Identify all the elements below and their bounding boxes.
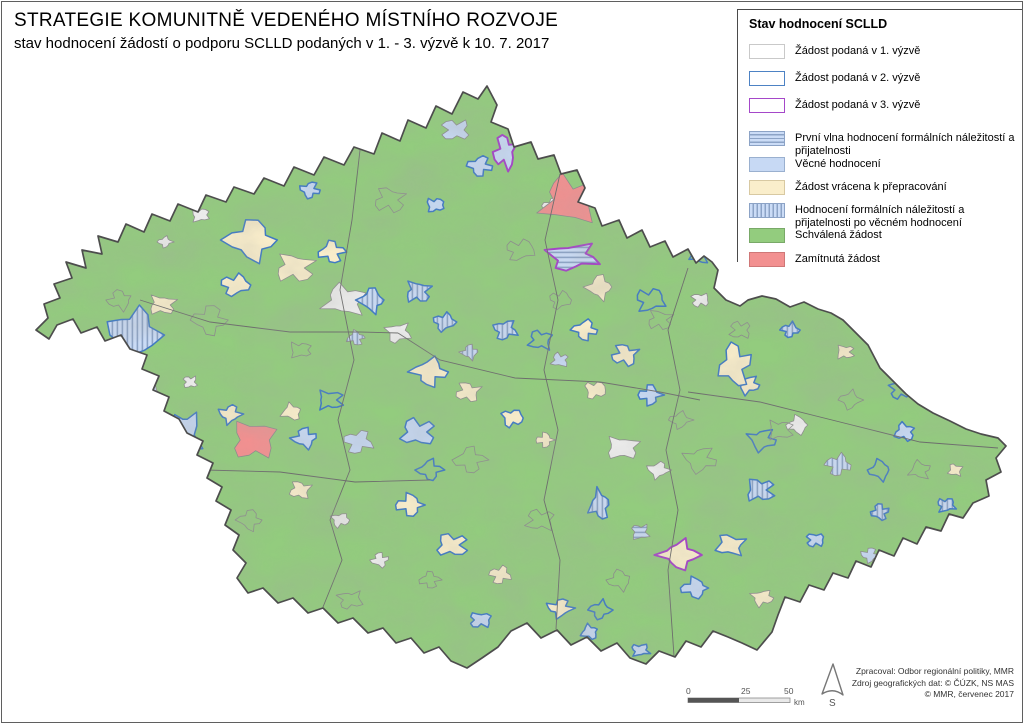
title-block: STRATEGIE KOMUNITNĚ VEDENÉHO MÍSTNÍHO RO… bbox=[14, 10, 558, 53]
legend-item-label: Žádost podaná v 1. výzvě bbox=[795, 44, 920, 58]
scale-bar-filled-segment bbox=[688, 698, 739, 703]
legend-item: Žádost podaná v 1. výzvě bbox=[749, 44, 920, 59]
scale-tick-25: 25 bbox=[741, 686, 751, 696]
legend-swatch-cream bbox=[749, 180, 785, 195]
legend-swatch-outline-blue bbox=[749, 71, 785, 86]
legend-swatch-hstripe bbox=[749, 131, 785, 146]
legend-item-label: Žádost podaná v 2. výzvě bbox=[795, 71, 920, 85]
legend-item: Věcné hodnocení bbox=[749, 157, 881, 172]
credit-line-source: Zdroj geografických dat: © ČÚZK, NS MAS bbox=[852, 678, 1014, 690]
mas-region bbox=[856, 618, 875, 633]
legend-swatch-vstripe bbox=[749, 203, 785, 218]
scale-bar-graphic: 0 25 50 km bbox=[680, 684, 815, 710]
mas-region bbox=[259, 141, 284, 159]
scale-tick-0: 0 bbox=[686, 686, 691, 696]
legend-swatch-green bbox=[749, 228, 785, 243]
credit-line-author: Zpracoval: Odbor regionální politiky, MM… bbox=[852, 666, 1014, 678]
page-title: STRATEGIE KOMUNITNĚ VEDENÉHO MÍSTNÍHO RO… bbox=[14, 10, 558, 32]
scale-bar: 0 25 50 km bbox=[680, 684, 815, 715]
north-arrow-graphic: S bbox=[812, 660, 852, 708]
legend-swatch-red bbox=[749, 252, 785, 267]
mas-region bbox=[903, 574, 920, 589]
legend-item: Zamítnutá žádost bbox=[749, 252, 880, 267]
legend-item-label: Zamítnutá žádost bbox=[795, 252, 880, 266]
mas-region bbox=[251, 157, 278, 179]
scale-tick-50: 50 bbox=[784, 686, 794, 696]
legend-swatch-outline-purple bbox=[749, 98, 785, 113]
legend-title: Stav hodnocení SCLLD bbox=[749, 17, 1022, 31]
map-credits: Zpracoval: Odbor regionální politiky, MM… bbox=[852, 666, 1014, 701]
legend-item-label: Schválená žádost bbox=[795, 228, 882, 242]
credit-line-copyright: © MMR, červenec 2017 bbox=[852, 689, 1014, 701]
legend-item: První vlna hodnocení formálních náležito… bbox=[749, 131, 1020, 157]
legend-item: Žádost vrácena k přepracování bbox=[749, 180, 947, 195]
legend-item-label: Hodnocení formálních náležitostí a přija… bbox=[795, 203, 1020, 229]
legend-item: Žádost podaná v 2. výzvě bbox=[749, 71, 920, 86]
legend-item-label: Žádost podaná v 3. výzvě bbox=[795, 98, 920, 112]
mas-region bbox=[879, 572, 901, 589]
legend-item: Schválená žádost bbox=[749, 228, 882, 243]
legend-swatch-lightblue bbox=[749, 157, 785, 172]
north-arrow-label: S bbox=[829, 698, 836, 708]
legend-item-label: První vlna hodnocení formálních náležito… bbox=[795, 131, 1020, 157]
legend-item-label: Žádost vrácena k přepracování bbox=[795, 180, 947, 194]
legend-swatch-outline-gray bbox=[749, 44, 785, 59]
legend-item: Hodnocení formálních náležitostí a přija… bbox=[749, 203, 1020, 229]
legend-item-label: Věcné hodnocení bbox=[795, 157, 881, 171]
north-arrow: S bbox=[812, 660, 852, 713]
mas-region bbox=[921, 537, 938, 552]
north-arrow-icon bbox=[822, 664, 843, 695]
page-subtitle: stav hodnocení žádostí o podporu SCLLD p… bbox=[14, 35, 558, 53]
mas-region bbox=[67, 332, 91, 350]
legend-item: Žádost podaná v 3. výzvě bbox=[749, 98, 920, 113]
scale-unit-label: km bbox=[794, 698, 805, 707]
legend: Stav hodnocení SCLLD Žádost podaná v 1. … bbox=[737, 9, 1022, 262]
